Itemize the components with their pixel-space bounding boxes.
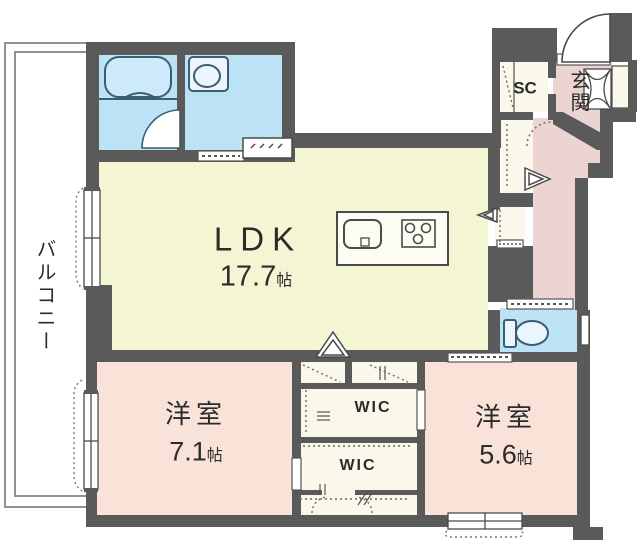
bedroom-right-label: 洋室: [475, 404, 537, 430]
bedroom-left-label: 洋室: [165, 401, 227, 427]
washing-machine-space-icon: [243, 138, 292, 158]
washroom-sliding-door-icon: [198, 151, 244, 161]
entrance-door-icon: [557, 14, 610, 65]
wic-upper-label: WIC: [354, 400, 391, 416]
bedroom-left-window-icon: [84, 390, 98, 492]
closet-b-sliding-door-icon: [497, 240, 523, 248]
shoe-cabinet-icon: [612, 66, 629, 108]
room-bedroom-right-floor: [425, 362, 577, 515]
bedroom-right-top-hatch: [448, 353, 512, 362]
floor-plan-drawing: [0, 0, 640, 545]
toilet-sliding-door-icon: [507, 299, 573, 309]
bedroom-right-size: 5.6帖: [479, 442, 533, 469]
wash-basin-icon: [189, 57, 228, 91]
wic-lower-label: WIC: [339, 458, 376, 474]
ldk-label: LDK: [214, 223, 302, 256]
toilet-icon: [504, 320, 548, 347]
bedroom-left-closet-opening: [292, 458, 301, 490]
ldk-size: 17.7帖: [220, 263, 292, 292]
entrance-label: 玄関: [568, 70, 588, 114]
bedroom-right-window-icon: [448, 513, 522, 529]
shoe-closet-label: SC: [513, 80, 537, 97]
kitchen-faucet: [361, 238, 369, 246]
bathtub-icon: [105, 57, 171, 97]
bedroom-right-door-opening: [417, 390, 425, 430]
floor-plan: LDK 17.7帖 洋室 7.1帖 洋室 5.6帖 WIC WIC SC 玄関 …: [0, 0, 640, 545]
kitchen-island-icon: [337, 212, 448, 265]
bedroom-left-size: 7.1帖: [169, 439, 223, 466]
ldk-balcony-window-icon: [84, 187, 100, 290]
gas-stove-icon: [402, 220, 435, 247]
toilet-window-icon: [581, 315, 589, 345]
balcony-label: バルコニー: [34, 239, 54, 354]
